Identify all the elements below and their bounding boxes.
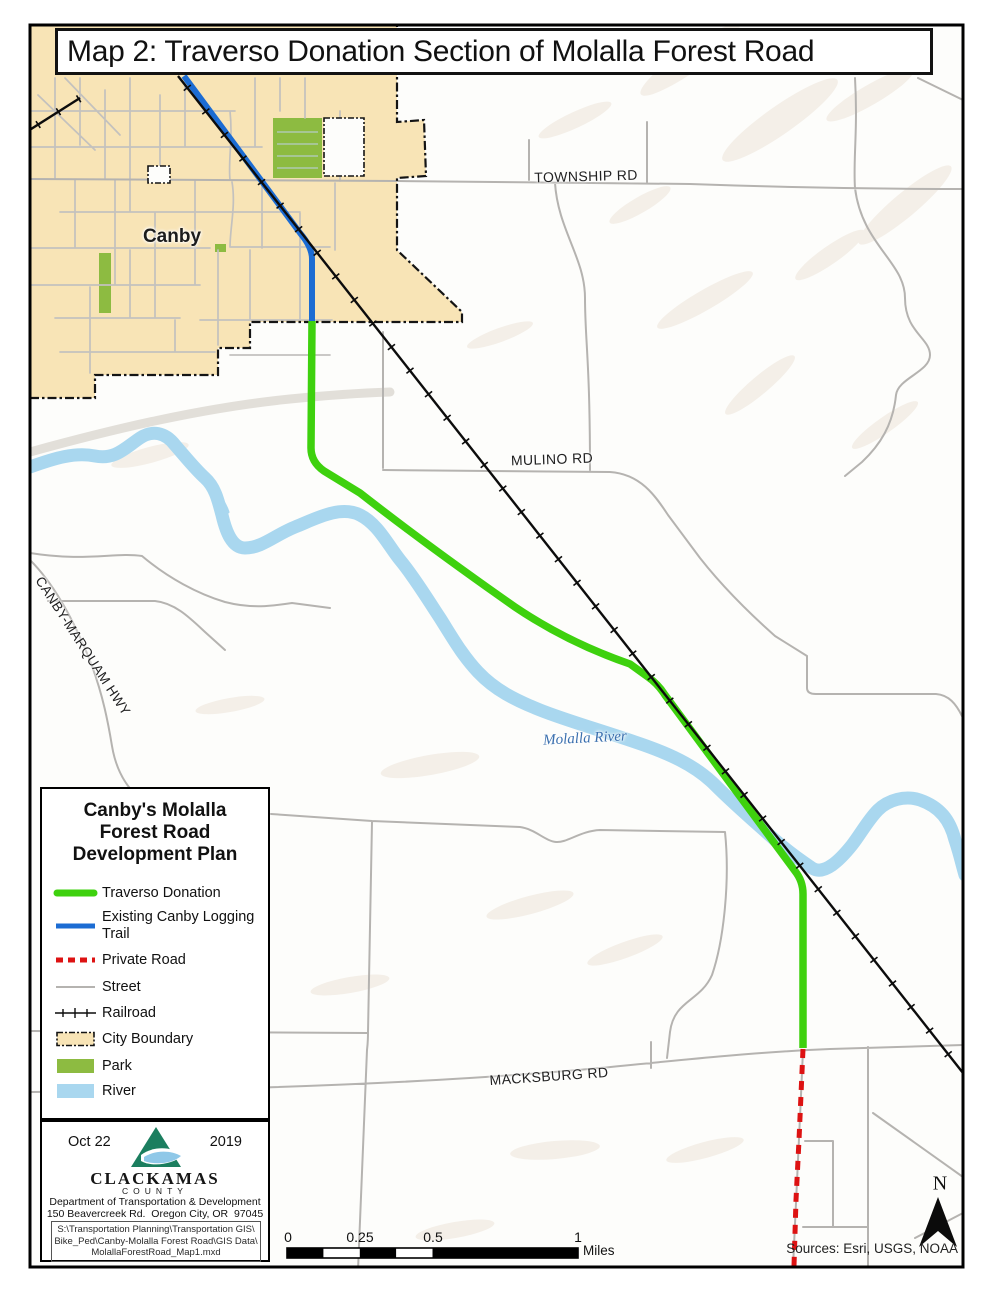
scale-unit-label: Miles bbox=[583, 1243, 615, 1258]
legend-item-city-boundary: City Boundary bbox=[52, 1026, 193, 1052]
org-wordmark-sub: COUNTY bbox=[42, 1186, 268, 1196]
railroad-line-swatch bbox=[52, 1004, 102, 1022]
legend-title: Canby's Molalla Forest Road Development … bbox=[42, 800, 268, 866]
north-label: N bbox=[933, 1173, 947, 1196]
file-path-box: S:\Transportation Planning\Transportatio… bbox=[51, 1221, 261, 1262]
boundary-notch bbox=[324, 118, 364, 176]
traverso-line-swatch bbox=[52, 884, 102, 902]
label-mulino-rd: MULINO RD bbox=[511, 450, 594, 469]
scale-label-0: 0 bbox=[284, 1229, 292, 1245]
address-line: 150 Beavercreek Rd. Oregon City, OR 9704… bbox=[42, 1208, 268, 1220]
date-month-day: Oct 22 bbox=[68, 1134, 111, 1150]
scale-label-05: 0.5 bbox=[423, 1229, 442, 1245]
legend-item-logging-trail: Existing Canby Logging Trail bbox=[52, 906, 257, 946]
date-year: 2019 bbox=[210, 1134, 242, 1150]
map-page: Canby TOWNSHIP RD MULINO RD MACKSBURG RD… bbox=[0, 0, 1000, 1294]
department-line: Department of Transportation & Developme… bbox=[42, 1196, 268, 1208]
legend-item-street: Street bbox=[52, 974, 141, 1000]
legend-box: Canby's Molalla Forest Road Development … bbox=[40, 787, 270, 1120]
legend-item-traverso: Traverso Donation bbox=[52, 880, 221, 906]
label-township-rd: TOWNSHIP RD bbox=[534, 167, 638, 186]
scale-label-025: 0.25 bbox=[346, 1229, 373, 1245]
legend-item-park: Park bbox=[52, 1053, 132, 1079]
clackamas-county-logo bbox=[128, 1125, 184, 1171]
info-box: Oct 22 2019 CLACKAMAS COUNTY Department … bbox=[40, 1120, 270, 1262]
park-swatch bbox=[52, 1057, 102, 1075]
label-canby: Canby bbox=[143, 226, 201, 248]
map-title: Map 2: Traverso Donation Section of Mola… bbox=[67, 35, 814, 69]
river-swatch bbox=[52, 1082, 102, 1100]
scale-label-1: 1 bbox=[574, 1229, 582, 1245]
scale-bar bbox=[287, 1248, 578, 1258]
logging-trail-line-swatch bbox=[52, 917, 102, 935]
private-road-line-swatch bbox=[52, 951, 102, 969]
title-box: Map 2: Traverso Donation Section of Mola… bbox=[55, 28, 933, 75]
legend-item-railroad: Railroad bbox=[52, 1000, 156, 1026]
legend-item-river: River bbox=[52, 1078, 136, 1104]
sources-credit: Sources: Esri, USGS, NOAA bbox=[786, 1241, 958, 1256]
boundary-island bbox=[148, 166, 170, 183]
city-boundary-swatch bbox=[52, 1030, 102, 1048]
street-line-swatch bbox=[52, 978, 102, 996]
legend-item-private-road: Private Road bbox=[52, 947, 186, 973]
